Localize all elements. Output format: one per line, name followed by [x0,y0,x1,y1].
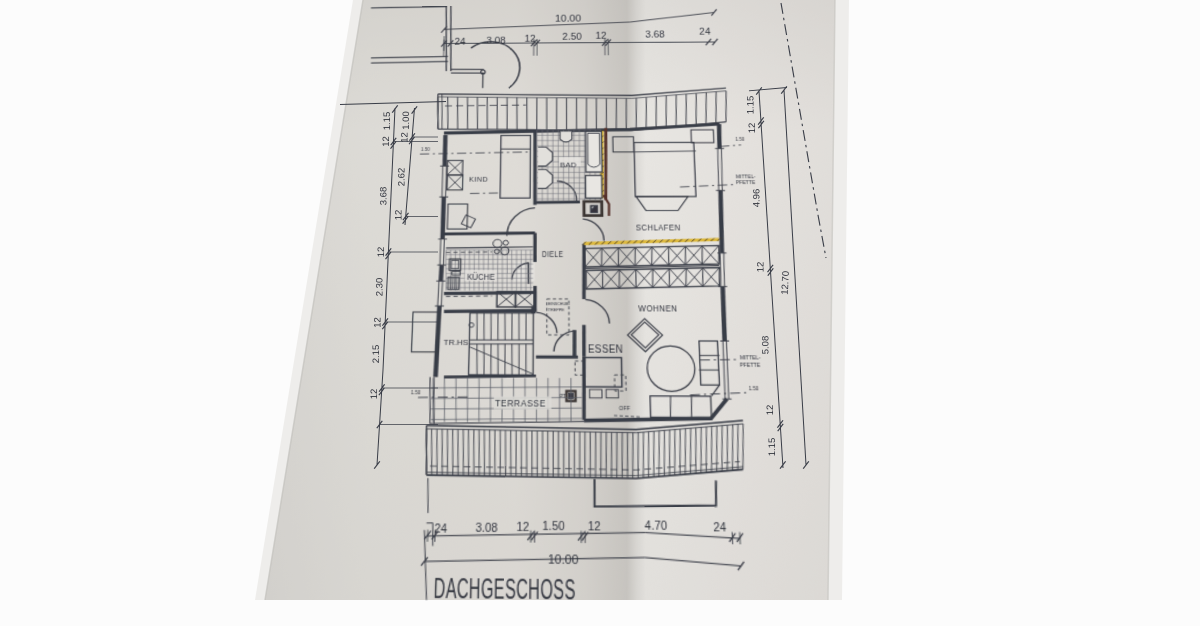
svg-text:12: 12 [765,405,776,416]
svg-text:1.00: 1.00 [401,111,412,130]
svg-text:2.15: 2.15 [371,345,382,364]
svg-text:4.96: 4.96 [751,189,762,208]
svg-text:2.62: 2.62 [396,168,407,187]
svg-text:12: 12 [756,262,767,273]
svg-text:1.15: 1.15 [745,96,756,115]
svg-text:1.15: 1.15 [382,112,393,131]
svg-text:1.15: 1.15 [767,438,778,457]
svg-text:5.08: 5.08 [761,336,772,355]
svg-text:3.68: 3.68 [379,187,390,206]
svg-text:12: 12 [369,389,380,400]
svg-text:12: 12 [747,123,758,134]
svg-text:12: 12 [393,210,404,221]
svg-text:12: 12 [381,136,392,147]
svg-text:12: 12 [376,247,387,258]
svg-text:12.70: 12.70 [780,271,792,295]
svg-text:12: 12 [373,317,384,328]
svg-text:2.30: 2.30 [374,278,385,297]
